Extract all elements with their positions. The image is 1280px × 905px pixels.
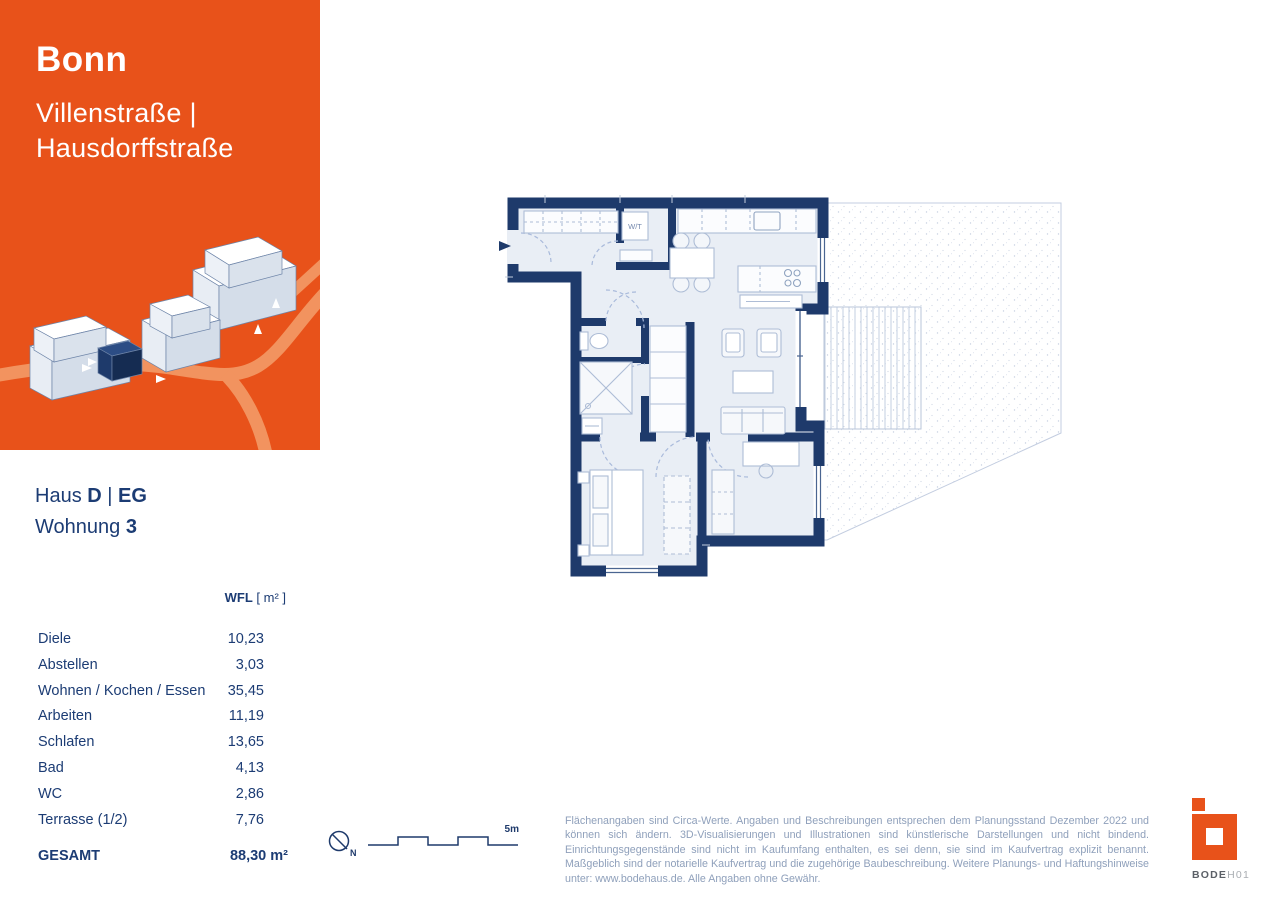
city-title: Bonn <box>36 40 127 80</box>
brand-name-bold: BODE <box>1192 869 1227 881</box>
table-total-row: GESAMT88,30 m² <box>38 844 288 870</box>
table-row: Wohnen / Kochen / Essen35,45 <box>38 679 288 705</box>
table-header: WFL [ m² ] <box>38 590 288 605</box>
brand-name: BODEH01 <box>1192 869 1252 881</box>
room-label: Bad <box>38 756 64 782</box>
haus-line: Haus D | EG <box>35 481 147 512</box>
room-area: 13,65 <box>228 730 288 756</box>
floor-value: EG <box>118 485 147 507</box>
table-row: Bad4,13 <box>38 756 288 782</box>
total-area: 88,30 m² <box>230 844 288 870</box>
haus-separator: | <box>107 485 112 507</box>
wt-label: W/T <box>628 222 642 231</box>
wfl-label: WFL <box>225 590 253 605</box>
toilet <box>590 334 608 349</box>
wfl-unit: [ m² ] <box>256 590 286 605</box>
room-area: 7,76 <box>236 808 288 834</box>
north-label: N <box>350 848 357 858</box>
wohnung-label: Wohnung <box>35 516 120 538</box>
bode-logo-icon <box>1192 798 1238 861</box>
desk <box>743 442 799 466</box>
total-label: GESAMT <box>38 844 100 870</box>
room-area: 3,03 <box>236 653 288 679</box>
room-label: Schlafen <box>38 730 94 756</box>
room-area: 4,13 <box>236 756 288 782</box>
room-label: WC <box>38 782 62 808</box>
room-area: 11,19 <box>229 704 288 730</box>
room-label: Diele <box>38 627 71 653</box>
haus-label: Haus <box>35 485 82 507</box>
compass-and-scale: N 5m <box>322 818 532 860</box>
wohnung-value: 3 <box>126 516 137 538</box>
area-table: WFL [ m² ] Diele10,23 Abstellen3,03 Wohn… <box>38 590 288 870</box>
brand-name-light: H01 <box>1227 869 1250 881</box>
coffee-table <box>733 371 773 393</box>
floorplan-drawing: W/T <box>490 190 1080 580</box>
room-label: Wohnen / Kochen / Essen <box>38 679 205 705</box>
street-line-2: Hausdorffstraße <box>36 131 234 166</box>
table-row: Schlafen13,65 <box>38 730 288 756</box>
room-area: 10,23 <box>228 627 288 653</box>
scale-bar <box>368 837 518 845</box>
unit-info: Haus D | EG Wohnung 3 <box>35 481 147 543</box>
street-subtitle: Villenstraße | Hausdorffstraße <box>36 96 234 166</box>
table-row: Abstellen3,03 <box>38 653 288 679</box>
north-arrow <box>330 832 349 851</box>
wardrobe <box>664 476 690 554</box>
disclaimer-text: Flächenangaben sind Circa-Werte. Angaben… <box>565 814 1149 886</box>
brand-logo: BODEH01 <box>1192 798 1252 881</box>
room-label: Arbeiten <box>38 704 92 730</box>
terrace-decking <box>824 307 921 429</box>
room-area: 2,86 <box>236 782 288 808</box>
room-label: Abstellen <box>38 653 98 679</box>
building-middle <box>142 295 220 372</box>
haus-value: D <box>87 485 101 507</box>
siteplan-illustration <box>0 198 320 450</box>
room-area: 35,45 <box>228 679 288 705</box>
location-panel: Bonn Villenstraße | Hausdorffstraße <box>0 0 320 450</box>
table-row: WC2,86 <box>38 782 288 808</box>
table-row: Terrasse (1/2)7,76 <box>38 808 288 834</box>
sofa <box>721 407 785 434</box>
street-line-1: Villenstraße | <box>36 96 234 131</box>
room-label: Terrasse (1/2) <box>38 808 127 834</box>
scale-label: 5m <box>505 824 520 835</box>
highlighted-unit <box>98 341 142 381</box>
table-row: Diele10,23 <box>38 627 288 653</box>
toilet-tank <box>580 332 588 350</box>
dining-table <box>670 248 714 278</box>
wohnung-line: Wohnung 3 <box>35 512 147 543</box>
building-left <box>30 316 142 400</box>
table-row: Arbeiten11,19 <box>38 704 288 730</box>
